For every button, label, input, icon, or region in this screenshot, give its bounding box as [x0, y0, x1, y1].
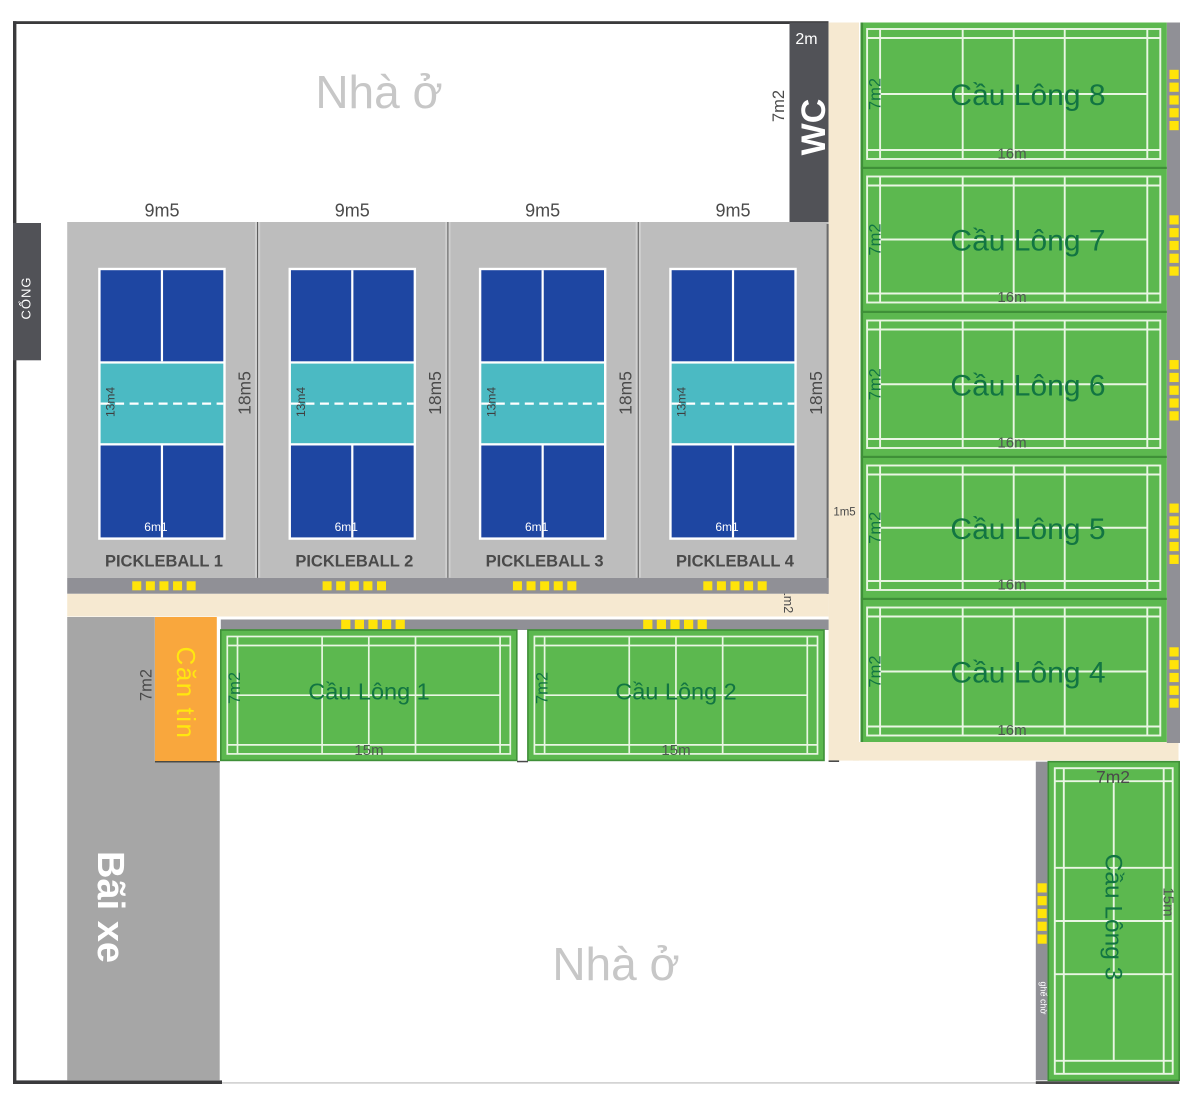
svg-text:PICKLEBALL 3: PICKLEBALL 3 [486, 553, 604, 571]
svg-text:7m2: 7m2 [138, 669, 156, 701]
svg-text:6m1: 6m1 [335, 520, 359, 534]
svg-text:Cầu Lông 1: Cầu Lông 1 [308, 679, 430, 705]
svg-text:Cầu Lông 2: Cầu Lông 2 [615, 679, 737, 705]
svg-text:Cầu Lông 7: Cầu Lông 7 [950, 225, 1105, 258]
svg-text:7m2: 7m2 [770, 90, 788, 122]
svg-text:15m: 15m [354, 742, 383, 759]
svg-text:CỔNG: CỔNG [19, 277, 34, 320]
svg-text:PICKLEBALL 1: PICKLEBALL 1 [105, 553, 223, 571]
svg-text:Bãi xe: Bãi xe [89, 851, 131, 963]
svg-text:7m2: 7m2 [867, 78, 885, 110]
svg-text:16m: 16m [997, 146, 1026, 163]
svg-text:7m2: 7m2 [1096, 767, 1130, 787]
svg-text:Cầu Lông 4: Cầu Lông 4 [950, 657, 1105, 690]
svg-text:18m5: 18m5 [615, 371, 635, 415]
svg-text:16m: 16m [997, 722, 1026, 739]
svg-text:7m2: 7m2 [867, 223, 885, 255]
svg-text:1m5: 1m5 [833, 507, 855, 519]
svg-text:WC: WC [795, 99, 833, 156]
svg-text:16m: 16m [997, 289, 1026, 306]
svg-text:9m5: 9m5 [715, 201, 750, 221]
svg-text:Căn tin: Căn tin [171, 647, 201, 740]
svg-text:6m1: 6m1 [525, 520, 549, 534]
svg-text:16m: 16m [997, 435, 1026, 452]
svg-text:18m5: 18m5 [235, 371, 255, 415]
svg-text:2m: 2m [795, 31, 817, 48]
svg-text:Nhà ở: Nhà ở [552, 938, 679, 990]
svg-text:PICKLEBALL 4: PICKLEBALL 4 [676, 553, 795, 571]
svg-text:Cầu Lông 8: Cầu Lông 8 [950, 79, 1105, 112]
svg-text:6m1: 6m1 [715, 520, 739, 534]
svg-text:7m2: 7m2 [867, 655, 885, 687]
svg-text:Cầu Lông 5: Cầu Lông 5 [950, 513, 1105, 546]
svg-text:13m4: 13m4 [484, 387, 498, 417]
svg-text:16m: 16m [997, 577, 1026, 594]
svg-text:18m5: 18m5 [425, 371, 445, 415]
svg-text:7m2: 7m2 [533, 672, 551, 704]
svg-text:9m5: 9m5 [335, 201, 370, 221]
svg-text:Cầu Lông 6: Cầu Lông 6 [950, 369, 1105, 402]
svg-text:13m4: 13m4 [104, 387, 118, 417]
svg-text:ghế chờ: ghế chờ [1039, 982, 1049, 1015]
svg-text:7m2: 7m2 [226, 672, 244, 704]
svg-text:Nhà ở: Nhà ở [315, 66, 442, 118]
svg-text:7m2: 7m2 [867, 512, 885, 544]
svg-text:18m5: 18m5 [806, 371, 826, 415]
svg-text:15m: 15m [661, 742, 690, 759]
svg-text:6m1: 6m1 [144, 520, 168, 534]
svg-text:9m5: 9m5 [525, 201, 560, 221]
svg-text:PICKLEBALL 2: PICKLEBALL 2 [295, 553, 413, 571]
svg-text:7m2: 7m2 [867, 368, 885, 400]
svg-text:13m4: 13m4 [294, 387, 308, 417]
svg-text:9m5: 9m5 [144, 201, 179, 221]
svg-text:13m4: 13m4 [675, 387, 689, 417]
svg-text:Cầu Lông 3: Cầu Lông 3 [1100, 854, 1127, 981]
svg-text:15m: 15m [1160, 887, 1177, 916]
